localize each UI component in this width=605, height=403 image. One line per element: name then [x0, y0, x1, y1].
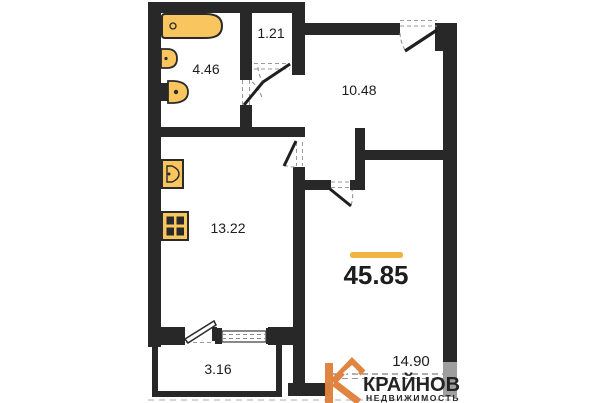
- washbasin-tap: [164, 57, 167, 60]
- stove-burner: [167, 228, 175, 236]
- room-area-label-living-room: 14.90: [392, 353, 430, 370]
- wall-storage-right: [292, 13, 305, 75]
- wall-kitchen-living-divider: [293, 167, 305, 396]
- bathtub-icon: [162, 14, 222, 38]
- wall-balcony-bottom: [152, 391, 282, 397]
- wall-bathroom-bottom: [148, 127, 305, 137]
- room-area-label-kitchen: 13.22: [210, 220, 245, 236]
- entrance-door: [400, 21, 437, 52]
- kitchen-sink-icon: [162, 160, 183, 188]
- kitchen-door-leaf: [284, 141, 296, 166]
- stove-burner: [177, 217, 185, 225]
- living-room-door: [330, 182, 353, 206]
- room-area-label-hallway: 10.48: [341, 82, 376, 98]
- wall-kitchen-bottom-right: [268, 327, 305, 345]
- brand-tagline: НЕДВИЖИМОСТЬ: [366, 393, 460, 403]
- stove-icon: [162, 212, 188, 240]
- total-area-accent-line: [350, 252, 403, 258]
- wall-bathroom-storage-divider: [240, 13, 252, 80]
- storage-door: [254, 64, 290, 83]
- kitchen-window: [222, 331, 266, 342]
- wall-living-bottom: [288, 383, 330, 396]
- toilet-flush: [174, 90, 178, 94]
- wall-hall-bottom: [365, 150, 443, 160]
- wall-living-top: [293, 180, 331, 190]
- wall-kitchen-bottom-left: [148, 327, 185, 345]
- wall-corridor: [355, 128, 365, 188]
- balcony-door-leaf: [185, 321, 216, 343]
- bathroom-door: [243, 80, 264, 105]
- balcony-door: [185, 321, 217, 343]
- wall-top: [148, 2, 305, 13]
- floor-plan-canvas: 4.46 1.21 10.48 13.22 14.90 3.16 45.85 К…: [0, 0, 605, 403]
- washbasin-icon: [161, 49, 177, 68]
- room-area-label-storage: 1.21: [257, 25, 284, 41]
- room-area-label-balcony: 3.16: [204, 361, 231, 377]
- toilet-cistern: [157, 83, 168, 101]
- kitchen-door: [284, 141, 303, 167]
- wall-hall-top: [292, 23, 400, 35]
- entrance-door-leaf: [405, 30, 437, 51]
- wall-left: [148, 2, 161, 347]
- brand-logo-icon: [325, 362, 363, 403]
- wall-balcony-right: [276, 345, 282, 397]
- floor-plan: 4.46 1.21 10.48 13.22 14.90 3.16 45.85 К…: [0, 0, 605, 403]
- total-area-label: 45.85: [343, 260, 408, 290]
- wall-right: [443, 23, 457, 362]
- living-room-door-leaf: [330, 189, 351, 206]
- stove-burner: [167, 217, 175, 225]
- room-area-label-bathroom: 4.46: [192, 61, 219, 77]
- stove-burner: [177, 228, 185, 236]
- storage-door-leaf: [263, 64, 290, 82]
- window-post-right: [266, 328, 273, 344]
- kitchen-sink-tap: [168, 173, 171, 176]
- wall-balcony-left: [152, 345, 158, 397]
